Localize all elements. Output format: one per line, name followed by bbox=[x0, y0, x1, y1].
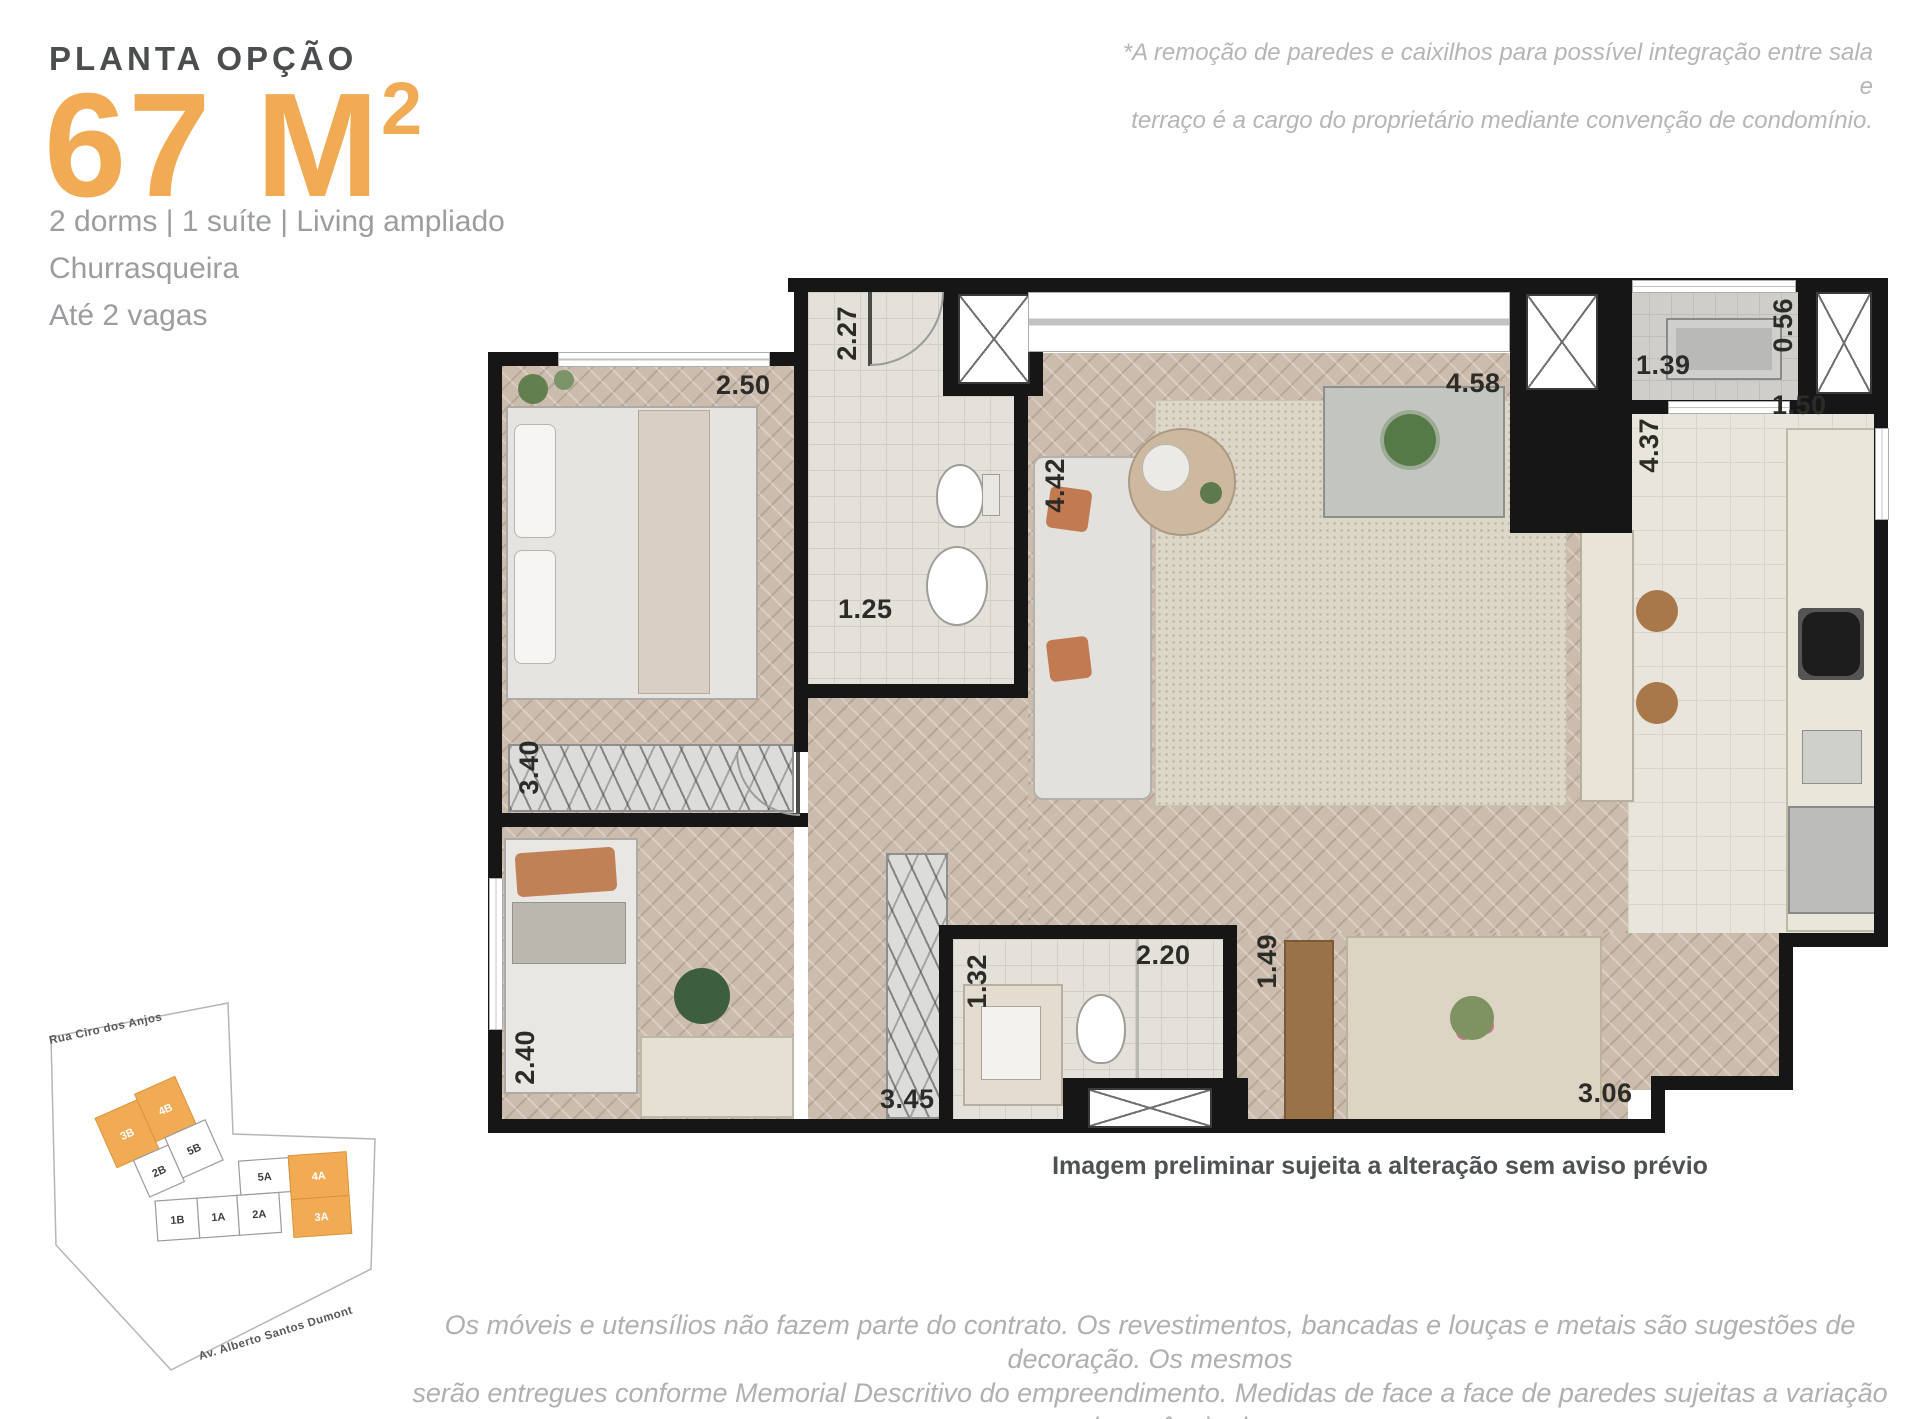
kitchen-window bbox=[1875, 428, 1889, 520]
desk2 bbox=[640, 1036, 794, 1118]
dim-bedroom2-width: 2.40 bbox=[510, 1030, 541, 1085]
island-stool bbox=[1636, 590, 1678, 632]
dim-suite-width: 2.50 bbox=[716, 370, 771, 401]
unit-2a-label: 2A bbox=[252, 1208, 267, 1221]
wall bbox=[939, 925, 953, 1133]
basin-bath2 bbox=[981, 1006, 1041, 1080]
dim-living-width: 3.06 bbox=[1578, 1078, 1633, 1109]
table-plant bbox=[1200, 482, 1222, 504]
unit-1a-label: 1A bbox=[211, 1211, 226, 1224]
sink-suite bbox=[926, 546, 988, 626]
integration-note-line2: terraço é a cargo do proprietário median… bbox=[1113, 104, 1873, 138]
dim-kitchen-length: 4.37 bbox=[1634, 418, 1665, 473]
street-name-bottom: Av. Alberto Santos Dumont bbox=[197, 1305, 354, 1363]
wall bbox=[794, 292, 808, 752]
suite-pillow bbox=[514, 550, 556, 664]
dim-kitchen-width: 1.50 bbox=[1772, 390, 1827, 421]
feature-line-churrasqueira: Churrasqueira bbox=[49, 245, 505, 292]
dim-bath2-length: 2.20 bbox=[1136, 940, 1191, 971]
bed2-blanket bbox=[512, 902, 626, 964]
bedroom2-window bbox=[489, 878, 503, 1030]
sofa-cushion bbox=[1046, 636, 1093, 683]
feature-line-dorms: 2 dorms | 1 suíte | Living ampliado bbox=[49, 198, 505, 245]
island-stool bbox=[1636, 682, 1678, 724]
wall bbox=[939, 925, 1237, 939]
toilet-bath2 bbox=[1076, 994, 1126, 1064]
dim-living-depth: 4.42 bbox=[1040, 458, 1071, 513]
toilet-suite bbox=[936, 464, 984, 528]
wall bbox=[488, 813, 808, 827]
shaft-x-icon bbox=[1816, 292, 1872, 394]
feature-list: 2 dorms | 1 suíte | Living ampliado Chur… bbox=[49, 198, 505, 339]
living-terrace-window bbox=[1028, 292, 1510, 352]
footer-line2: serão entregues conforme Memorial Descri… bbox=[390, 1376, 1910, 1419]
kitchen-island bbox=[1580, 530, 1634, 802]
integration-note: *A remoção de paredes e caixilhos para p… bbox=[1113, 36, 1873, 138]
unit-5a-label: 5A bbox=[257, 1171, 272, 1184]
suite-throw bbox=[638, 410, 710, 694]
suite-plant bbox=[554, 370, 574, 390]
table-lamp bbox=[1142, 444, 1190, 492]
unit-3a-label: 3A bbox=[314, 1211, 329, 1224]
dim-suite-bath-width: 1.25 bbox=[838, 594, 893, 625]
desk2-chair bbox=[674, 968, 730, 1024]
bed2-pillow bbox=[515, 847, 618, 898]
floor-plan: 2.27 2.50 1.25 3.40 4.42 4.58 1.39 0.56 … bbox=[488, 278, 1888, 1150]
wall bbox=[1779, 933, 1793, 1090]
unit-4a-label: 4A bbox=[311, 1170, 326, 1183]
integration-note-line1: *A remoção de paredes e caixilhos para p… bbox=[1113, 36, 1873, 104]
console-plant bbox=[1384, 414, 1436, 466]
dining-bench bbox=[1284, 940, 1334, 1122]
footer-disclaimer: Os móveis e utensílios não fazem parte d… bbox=[390, 1308, 1910, 1419]
dining-flowers bbox=[1450, 996, 1494, 1040]
area-superscript: 2 bbox=[381, 67, 424, 150]
key-plan: 3B 4B 2B 5B 1B 1A 2A 5A 4A 3A Rua Ciro d… bbox=[28, 982, 400, 1402]
feature-line-vagas: Até 2 vagas bbox=[49, 292, 505, 339]
dim-bath2-width: 1.32 bbox=[962, 954, 993, 1009]
cooktop bbox=[1798, 608, 1864, 680]
terrace-rail-window bbox=[1632, 280, 1796, 293]
toilet-suite-tank bbox=[982, 474, 1000, 516]
fridge bbox=[1788, 806, 1876, 914]
dim-entry-depth: 2.27 bbox=[832, 306, 863, 361]
suite-pillow bbox=[514, 424, 556, 538]
unit-1b-label: 1B bbox=[170, 1214, 185, 1227]
page: PLANTA OPÇÃO 67 M2 2 dorms | 1 suíte | L… bbox=[0, 0, 1920, 1419]
plan-caption: Imagem preliminar sujeita a alteração se… bbox=[880, 1152, 1880, 1181]
street-name-top: Rua Ciro dos Anjos bbox=[48, 1011, 163, 1047]
suite-window bbox=[558, 352, 770, 367]
kitchen-sink bbox=[1802, 730, 1862, 784]
dim-suite-length: 3.40 bbox=[514, 740, 545, 795]
dim-grill-wall: 4.58 bbox=[1446, 368, 1501, 399]
wall bbox=[1779, 933, 1888, 947]
dim-service-terrace-width: 1.39 bbox=[1636, 350, 1691, 381]
wall bbox=[1651, 1076, 1793, 1090]
shaft-x-icon bbox=[958, 294, 1030, 384]
dim-closet-length: 3.45 bbox=[880, 1084, 935, 1115]
shaft-x-icon bbox=[1526, 294, 1598, 390]
wall bbox=[808, 684, 1028, 698]
footer-line1: Os móveis e utensílios não fazem parte d… bbox=[390, 1308, 1910, 1376]
dim-dining-width: 1.49 bbox=[1252, 934, 1283, 989]
shaft-x-icon bbox=[1088, 1088, 1212, 1128]
suite-plant bbox=[518, 374, 548, 404]
dim-service-terrace-depth: 0.56 bbox=[1768, 298, 1799, 353]
